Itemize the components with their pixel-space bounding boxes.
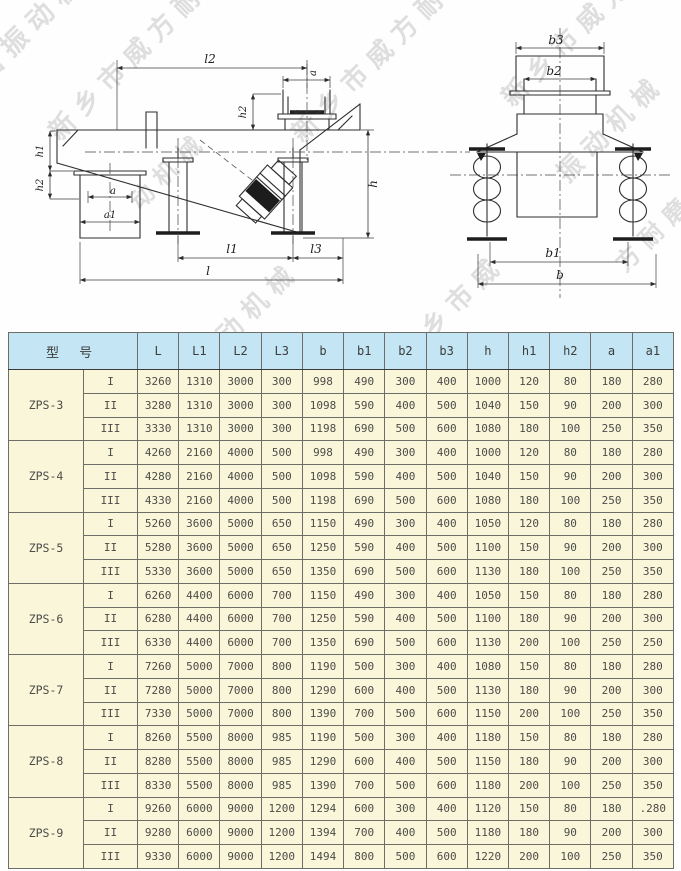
tier-cell: I [84,797,138,821]
value-cell: 9330 [138,845,179,869]
column-header: b1 [344,333,385,370]
value-cell: 700 [344,821,385,845]
value-cell: 985 [261,750,302,774]
column-header: L2 [220,333,261,370]
value-cell: 6280 [138,607,179,631]
value-cell: 600 [426,845,467,869]
value-cell: 90 [550,393,591,417]
value-cell: 150 [508,465,549,489]
table-row: ZPS-5I5260360050006501150490300400105012… [9,512,674,536]
value-cell: 600 [426,488,467,512]
value-cell: 300 [385,583,426,607]
value-cell: 400 [385,821,426,845]
value-cell: 400 [426,512,467,536]
value-cell: 1180 [467,773,508,797]
value-cell: 1098 [302,465,343,489]
value-cell: 5500 [179,726,220,750]
value-cell: 180 [591,655,632,679]
value-cell: 180 [591,512,632,536]
value-cell: 1220 [467,845,508,869]
column-header: a1 [632,333,673,370]
value-cell: 80 [550,512,591,536]
value-cell: 650 [261,536,302,560]
tier-cell: III [84,773,138,797]
value-cell: 3600 [179,536,220,560]
value-cell: 1180 [467,726,508,750]
value-cell: 985 [261,726,302,750]
value-cell: 200 [591,821,632,845]
value-cell: 500 [385,631,426,655]
value-cell: 500 [261,465,302,489]
table-row: II32801310300030010985904005001040150902… [9,393,674,417]
value-cell: 500 [426,678,467,702]
spring-support-left [467,144,507,239]
value-cell: 9000 [220,845,261,869]
value-cell: 1050 [467,512,508,536]
dim-label-l1: l1 [226,242,237,256]
value-cell: 180 [591,370,632,394]
value-cell: 600 [426,417,467,441]
value-cell: 250 [591,773,632,797]
value-cell: 300 [632,750,673,774]
value-cell: 5000 [220,536,261,560]
dim-label-h: h [366,180,380,188]
tier-cell: II [84,536,138,560]
value-cell: 6000 [220,607,261,631]
value-cell: 200 [591,393,632,417]
value-cell: 8000 [220,750,261,774]
value-cell: 300 [261,370,302,394]
value-cell: 350 [632,488,673,512]
value-cell: 1100 [467,536,508,560]
column-header: h [467,333,508,370]
value-cell: 150 [508,726,549,750]
value-cell: 1190 [302,726,343,750]
value-cell: 90 [550,607,591,631]
value-cell: 1200 [261,797,302,821]
value-cell: 7280 [138,678,179,702]
value-cell: 8000 [220,773,261,797]
value-cell: 5000 [220,560,261,584]
tier-cell: I [84,726,138,750]
value-cell: 200 [508,773,549,797]
table-row: III7330500070008001390700500600115020010… [9,702,674,726]
value-cell: 998 [302,441,343,465]
value-cell: 1394 [302,821,343,845]
table-row: ZPS-7I7260500070008001190500300400108015… [9,655,674,679]
tier-cell: II [84,750,138,774]
value-cell: 490 [344,512,385,536]
value-cell: 4280 [138,465,179,489]
value-cell: 1310 [179,393,220,417]
tier-cell: II [84,607,138,631]
value-cell: 100 [550,845,591,869]
value-cell: 1120 [467,797,508,821]
value-cell: 180 [508,678,549,702]
value-cell: 120 [508,370,549,394]
value-cell: 120 [508,441,549,465]
value-cell: 200 [591,607,632,631]
value-cell: 2160 [179,441,220,465]
value-cell: 4260 [138,441,179,465]
value-cell: 250 [591,560,632,584]
dim-label-b1: b1 [545,246,560,260]
value-cell: 180 [508,821,549,845]
value-cell: 4400 [179,607,220,631]
column-header: L1 [179,333,220,370]
value-cell: 500 [426,536,467,560]
value-cell: 180 [508,417,549,441]
value-cell: 4000 [220,465,261,489]
column-header: b2 [385,333,426,370]
value-cell: 1350 [302,631,343,655]
tier-cell: II [84,465,138,489]
value-cell: 4400 [179,631,220,655]
value-cell: 700 [261,583,302,607]
table-header: 型 号LL1L2L3bb1b2b3hh1h2aa1 [9,333,674,370]
value-cell: 5000 [220,512,261,536]
table-row: ZPS-9I9260600090001200129460030040011201… [9,797,674,821]
column-header: L [138,333,179,370]
value-cell: 7000 [220,678,261,702]
value-cell: 400 [426,655,467,679]
value-cell: 300 [632,607,673,631]
value-cell: 500 [344,655,385,679]
value-cell: 500 [426,821,467,845]
table-row: ZPS-8I8260550080009851190500300400118015… [9,726,674,750]
value-cell: 90 [550,465,591,489]
value-cell: 650 [261,560,302,584]
value-cell: 180 [508,488,549,512]
value-cell: 7000 [220,702,261,726]
table-row: II42802160400050010985904005001040150902… [9,465,674,489]
value-cell: 80 [550,797,591,821]
value-cell: 150 [508,583,549,607]
value-cell: 800 [261,655,302,679]
value-cell: 690 [344,631,385,655]
value-cell: 8000 [220,726,261,750]
value-cell: 5500 [179,773,220,797]
value-cell: 4400 [179,583,220,607]
value-cell: 400 [385,536,426,560]
value-cell: 250 [632,631,673,655]
value-cell: 250 [591,417,632,441]
value-cell: 280 [632,441,673,465]
table-row: ZPS-4I4260216040005009984903004001000120… [9,441,674,465]
value-cell: 985 [261,773,302,797]
value-cell: 300 [632,821,673,845]
value-cell: 200 [591,678,632,702]
value-cell: 180 [591,583,632,607]
value-cell: 90 [550,750,591,774]
value-cell: 1290 [302,750,343,774]
value-cell: 4330 [138,488,179,512]
table-row: III5330360050006501350690500600113018010… [9,560,674,584]
tier-cell: II [84,678,138,702]
value-cell: 400 [385,678,426,702]
value-cell: 180 [508,607,549,631]
column-header: h1 [508,333,549,370]
value-cell: 90 [550,821,591,845]
value-cell: 1390 [302,702,343,726]
value-cell: 800 [261,702,302,726]
table-row: III6330440060007001350690500600113020010… [9,631,674,655]
vibration-motor [233,157,300,226]
value-cell: 300 [385,512,426,536]
value-cell: 1150 [302,583,343,607]
model-cell: ZPS-7 [9,655,84,726]
value-cell: 690 [344,417,385,441]
value-cell: 500 [426,393,467,417]
value-cell: 250 [591,631,632,655]
value-cell: 800 [261,678,302,702]
value-cell: 700 [261,631,302,655]
tier-cell: III [84,631,138,655]
value-cell: 280 [632,370,673,394]
model-cell: ZPS-8 [9,726,84,797]
value-cell: 150 [508,536,549,560]
value-cell: 120 [508,512,549,536]
dim-label-inlet-a: a [308,70,319,76]
table-body: ZPS-3I3260131030003009984903004001000120… [9,370,674,869]
value-cell: 180 [508,560,549,584]
value-cell: 1390 [302,773,343,797]
table-row: ZPS-3I3260131030003009984903004001000120… [9,370,674,394]
value-cell: 4000 [220,488,261,512]
value-cell: 100 [550,631,591,655]
value-cell: 500 [261,441,302,465]
value-cell: 1080 [467,488,508,512]
value-cell: 500 [426,465,467,489]
value-cell: 600 [426,560,467,584]
value-cell: 200 [591,465,632,489]
value-cell: 690 [344,488,385,512]
value-cell: 3330 [138,417,179,441]
table-row: II52803600500065012505904005001100150902… [9,536,674,560]
value-cell: 9000 [220,821,261,845]
tier-cell: I [84,655,138,679]
value-cell: 490 [344,370,385,394]
table-row: II82805500800098512906004005001150180902… [9,750,674,774]
value-cell: 500 [426,750,467,774]
value-cell: 1250 [302,536,343,560]
dim-label-b2: b2 [546,64,561,78]
dim-label-l: l [206,264,210,278]
value-cell: 700 [344,702,385,726]
value-cell: 1130 [467,631,508,655]
end-view: b3 b2 b1 b [450,28,670,298]
table-row: II72805000700080012906004005001130180902… [9,678,674,702]
dim-label-inlet-h2: h2 [238,106,249,119]
value-cell: 280 [632,655,673,679]
value-cell: 100 [550,773,591,797]
value-cell: 300 [385,726,426,750]
value-cell: 80 [550,726,591,750]
value-cell: 998 [302,370,343,394]
value-cell: 1310 [179,370,220,394]
value-cell: 280 [632,583,673,607]
dim-label-l3: l3 [310,242,322,256]
value-cell: 100 [550,417,591,441]
tier-cell: III [84,845,138,869]
value-cell: 1180 [467,821,508,845]
table-row: III8330550080009851390700500600118020010… [9,773,674,797]
value-cell: 350 [632,417,673,441]
value-cell: 150 [508,393,549,417]
value-cell: 8280 [138,750,179,774]
value-cell: 300 [385,797,426,821]
value-cell: 700 [261,607,302,631]
value-cell: 700 [344,773,385,797]
value-cell: 300 [632,393,673,417]
model-cell: ZPS-4 [9,441,84,512]
value-cell: 1080 [467,417,508,441]
dimension-table: 型 号LL1L2L3bb1b2b3hh1h2aa1 ZPS-3I32601310… [8,332,674,869]
value-cell: 500 [385,773,426,797]
value-cell: 1000 [467,441,508,465]
model-column-header: 型 号 [9,333,138,370]
value-cell: 5500 [179,750,220,774]
value-cell: 7000 [220,655,261,679]
value-cell: 90 [550,536,591,560]
value-cell: 8260 [138,726,179,750]
value-cell: 180 [591,726,632,750]
value-cell: 5000 [179,678,220,702]
value-cell: 400 [385,607,426,631]
value-cell: 400 [426,370,467,394]
technical-drawing: l2 a h2 h1 h2 a a1 h l1 l3 [0,0,681,330]
value-cell: 1200 [261,845,302,869]
value-cell: 600 [344,750,385,774]
column-header: L3 [261,333,302,370]
value-cell: 200 [591,536,632,560]
value-cell: 400 [385,393,426,417]
value-cell: 350 [632,845,673,869]
value-cell: 3600 [179,512,220,536]
value-cell: 1050 [467,583,508,607]
tier-cell: I [84,512,138,536]
value-cell: 500 [385,560,426,584]
value-cell: 1150 [467,750,508,774]
value-cell: 590 [344,393,385,417]
value-cell: 500 [385,488,426,512]
side-view: l2 a h2 h1 h2 a a1 h l1 l3 [35,52,470,284]
dim-label-h1: h1 [35,145,46,158]
value-cell: 500 [344,726,385,750]
value-cell: 5000 [179,702,220,726]
value-cell: 9000 [220,797,261,821]
value-cell: 500 [385,417,426,441]
tier-cell: I [84,441,138,465]
value-cell: 5000 [179,655,220,679]
value-cell: 200 [508,631,549,655]
model-cell: ZPS-5 [9,512,84,583]
value-cell: 5280 [138,536,179,560]
value-cell: 1250 [302,607,343,631]
value-cell: 80 [550,583,591,607]
value-cell: 80 [550,370,591,394]
value-cell: 1040 [467,393,508,417]
value-cell: 6000 [179,845,220,869]
value-cell: 7260 [138,655,179,679]
value-cell: 3000 [220,393,261,417]
value-cell: 400 [426,797,467,821]
dim-label-l2: l2 [204,52,215,66]
value-cell: 1198 [302,488,343,512]
value-cell: 300 [385,441,426,465]
value-cell: 400 [426,583,467,607]
value-cell: 200 [591,750,632,774]
dim-label-outlet-a1: a1 [104,210,116,221]
value-cell: 1198 [302,417,343,441]
value-cell: 200 [508,845,549,869]
model-cell: ZPS-9 [9,797,84,869]
column-header: h2 [550,333,591,370]
table-row: III4330216040005001198690500600108018010… [9,488,674,512]
value-cell: 1294 [302,797,343,821]
value-cell: 1150 [467,702,508,726]
value-cell: 400 [426,441,467,465]
value-cell: 300 [632,678,673,702]
tier-cell: I [84,583,138,607]
value-cell: 1310 [179,417,220,441]
value-cell: 6260 [138,583,179,607]
model-cell: ZPS-6 [9,583,84,654]
value-cell: 3280 [138,393,179,417]
value-cell: 1098 [302,393,343,417]
value-cell: 6000 [220,583,261,607]
value-cell: 180 [591,441,632,465]
value-cell: 1190 [302,655,343,679]
value-cell: 600 [426,773,467,797]
dim-label-b3: b3 [548,33,564,47]
value-cell: 400 [385,465,426,489]
value-cell: 350 [632,702,673,726]
value-cell: 7330 [138,702,179,726]
value-cell: 300 [632,536,673,560]
dim-label-b: b [556,268,564,282]
table-row: III3330131030003001198690500600108018010… [9,417,674,441]
value-cell: 80 [550,441,591,465]
value-cell: 300 [632,465,673,489]
tier-cell: III [84,488,138,512]
value-cell: 150 [508,797,549,821]
value-cell: 5330 [138,560,179,584]
table-row: II92806000900012001394700400500118018090… [9,821,674,845]
value-cell: 6000 [179,797,220,821]
spring-support-right [613,144,653,239]
column-header: a [591,333,632,370]
value-cell: 600 [426,702,467,726]
column-header: b3 [426,333,467,370]
value-cell: 600 [344,797,385,821]
value-cell: 500 [426,607,467,631]
value-cell: 6000 [220,631,261,655]
value-cell: 1080 [467,655,508,679]
value-cell: 1040 [467,465,508,489]
value-cell: 9260 [138,797,179,821]
value-cell: 500 [385,702,426,726]
tier-cell: II [84,821,138,845]
value-cell: 1150 [302,512,343,536]
value-cell: 500 [385,845,426,869]
value-cell: 250 [591,702,632,726]
table-row: ZPS-6I6260440060007001150490300400105015… [9,583,674,607]
value-cell: 9280 [138,821,179,845]
value-cell: 1000 [467,370,508,394]
value-cell: 180 [508,750,549,774]
table-row: III9330600090001200149480050060012202001… [9,845,674,869]
